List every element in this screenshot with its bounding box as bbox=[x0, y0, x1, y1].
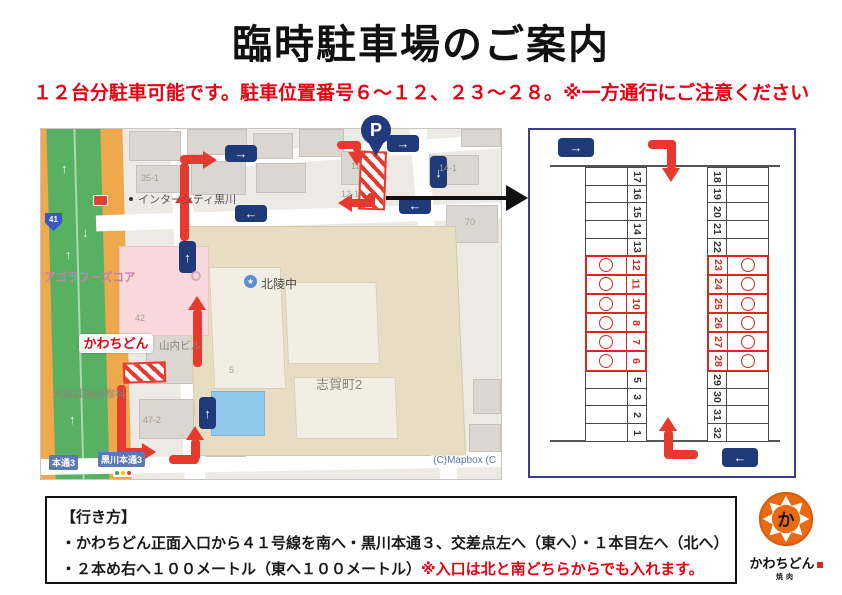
open-circle-mark bbox=[741, 297, 755, 311]
stall-number: 11 bbox=[630, 279, 642, 290]
stall-number: 21 bbox=[711, 224, 723, 236]
lane-arrow-down-icon: ↓ bbox=[82, 225, 89, 240]
stall-number-strip: 11 bbox=[626, 276, 645, 293]
parking-stall-2: 2 bbox=[585, 405, 647, 424]
roadsign-kurokawa-hondori3: 黒川本通3 bbox=[98, 452, 145, 467]
entry-arrow-segment bbox=[667, 140, 676, 170]
stall-number-strip: 15 bbox=[627, 203, 646, 220]
stall-number-strip: 3 bbox=[627, 389, 646, 406]
parking-stall-20: 20 bbox=[707, 202, 769, 221]
stall-number-strip: 12 bbox=[626, 257, 645, 274]
label-agora-foods: アゴラフーズコア bbox=[44, 269, 135, 285]
page-title: 臨時駐車場のご案内 bbox=[0, 12, 842, 70]
one-way-right-icon: → bbox=[387, 135, 419, 152]
stall-number: 18 bbox=[711, 171, 723, 183]
stall-number-strip: 5 bbox=[627, 371, 646, 388]
stall-number-strip: 10 bbox=[626, 295, 645, 312]
stall-number-strip: 21 bbox=[708, 221, 727, 238]
parking-stall-11: 11 bbox=[585, 274, 647, 295]
stall-number: 24 bbox=[712, 279, 724, 291]
label-intercity-kurokawa: インターシティ黒川 bbox=[138, 191, 236, 207]
parking-stall-15: 15 bbox=[585, 202, 647, 221]
parking-stall-10: 10 bbox=[585, 293, 647, 314]
open-circle-mark bbox=[741, 335, 755, 349]
stall-number: 31 bbox=[711, 409, 723, 421]
stall-number-strip: 23 bbox=[709, 257, 728, 274]
stall-number: 6 bbox=[630, 358, 642, 364]
entry-arrow-down-icon bbox=[662, 168, 680, 182]
logo-name: かわちどん bbox=[740, 553, 832, 572]
map-to-diagram-arrowhead bbox=[506, 185, 528, 211]
parking-stall-12: 12 bbox=[585, 255, 647, 276]
map-badge-icon bbox=[93, 195, 108, 206]
open-circle-mark bbox=[599, 335, 613, 349]
one-way-up-icon: ↑ bbox=[199, 397, 216, 429]
page-subtitle: １２台分駐車可能です。駐車位置番号６～１２、２３～２８。※一方通行にご注意くださ… bbox=[0, 78, 842, 105]
parking-stall-21: 21 bbox=[707, 220, 769, 239]
parking-stall-32: 32 bbox=[707, 423, 769, 442]
parking-stall-14: 14 bbox=[585, 220, 647, 239]
parking-stall-6: 6 bbox=[585, 350, 647, 371]
stall-number: 32 bbox=[711, 427, 723, 439]
stall-number: 5 bbox=[631, 377, 643, 383]
open-circle-mark bbox=[599, 297, 613, 311]
stall-number: 10 bbox=[630, 298, 642, 310]
open-circle-mark bbox=[599, 354, 613, 368]
route-arrow-segment bbox=[349, 199, 375, 207]
stall-number-strip: 30 bbox=[708, 389, 727, 406]
map-attribution: (C)Mapbox (C bbox=[431, 455, 498, 466]
stall-number: 14 bbox=[631, 224, 643, 236]
one-way-right-icon: → bbox=[225, 145, 257, 162]
parking-flyer: 臨時駐車場のご案内 １２台分駐車可能です。駐車位置番号６～１２、２３～２８。※一… bbox=[0, 0, 842, 595]
stall-number-strip: 16 bbox=[627, 186, 646, 203]
stall-number: 30 bbox=[711, 391, 723, 403]
building-number: 47-2 bbox=[143, 415, 161, 425]
parking-stall-1: 1 bbox=[585, 423, 647, 442]
shop-icon bbox=[191, 271, 201, 281]
map-building bbox=[473, 379, 501, 414]
map-building bbox=[191, 161, 246, 195]
stall-number-strip: 24 bbox=[709, 276, 728, 293]
stall-number: 17 bbox=[631, 171, 643, 183]
parking-stall-16: 16 bbox=[585, 185, 647, 204]
route-41-highway bbox=[46, 128, 110, 480]
stall-column-right: 181920212223242526272829303132 bbox=[707, 167, 769, 442]
brand-logo: か かわちどん 焼肉 bbox=[740, 490, 832, 582]
stall-number: 27 bbox=[712, 336, 724, 348]
route-arrow-right-icon bbox=[203, 151, 217, 169]
stall-number-strip: 2 bbox=[627, 406, 646, 423]
open-circle-mark bbox=[599, 277, 613, 291]
stall-number-strip: 17 bbox=[627, 168, 646, 185]
route-arrow-segment bbox=[191, 439, 200, 461]
one-way-left-icon: ← bbox=[722, 448, 758, 467]
stall-column-left: 17161514131211108765321 bbox=[585, 167, 647, 442]
parking-stall-17: 17 bbox=[585, 167, 647, 186]
building-number: 5 bbox=[229, 365, 234, 375]
open-circle-mark bbox=[599, 258, 613, 272]
open-circle-mark bbox=[741, 354, 755, 368]
stall-number: 22 bbox=[711, 241, 723, 253]
map-to-diagram-arrow bbox=[386, 196, 508, 200]
directions-line1: ・かわちどん正面入口から４１号線を南へ・黒川本通３、交差点左へ（東へ）・１本目左… bbox=[61, 531, 721, 557]
label-yamauchi-bldg: 山内ビル bbox=[159, 338, 201, 353]
map-building bbox=[129, 131, 181, 161]
stall-number-strip: 1 bbox=[627, 424, 646, 441]
parking-stall-24: 24 bbox=[707, 274, 769, 295]
stall-number-strip: 32 bbox=[708, 424, 727, 441]
parking-stall-19: 19 bbox=[707, 185, 769, 204]
stall-number-strip: 20 bbox=[708, 203, 727, 220]
stall-number-strip: 27 bbox=[709, 333, 728, 350]
stall-number: 12 bbox=[630, 259, 642, 271]
map-building bbox=[253, 133, 293, 159]
stall-number-strip: 8 bbox=[626, 314, 645, 331]
open-circle-mark bbox=[741, 277, 755, 291]
parking-stall-3: 3 bbox=[585, 388, 647, 407]
parking-stall-25: 25 bbox=[707, 293, 769, 314]
label-shigacho: 志賀町2 bbox=[316, 374, 362, 393]
map-building bbox=[469, 424, 501, 452]
parking-stall-28: 28 bbox=[707, 350, 769, 371]
traffic-signal-icon bbox=[113, 469, 133, 477]
lane-arrow-up-icon: ↑ bbox=[69, 412, 76, 427]
stall-number-strip: 26 bbox=[709, 314, 728, 331]
stall-number-strip: 19 bbox=[708, 186, 727, 203]
parking-stall-23: 23 bbox=[707, 255, 769, 276]
kawachidon-emblem-icon: か bbox=[757, 490, 815, 548]
parking-stall-30: 30 bbox=[707, 388, 769, 407]
route-map: ↑ ↓ ↑ ↓ ↑ bbox=[40, 128, 502, 480]
school-pool bbox=[211, 391, 265, 436]
one-way-right-icon: → bbox=[558, 138, 594, 157]
stall-number: 23 bbox=[712, 259, 724, 271]
stall-number-strip: 31 bbox=[708, 406, 727, 423]
stall-number-strip: 6 bbox=[626, 352, 645, 369]
emblem-character: か bbox=[777, 510, 795, 530]
label-omori-ent: 大森耳鼻咽喉科 bbox=[52, 386, 126, 401]
one-way-left-icon: ← bbox=[235, 205, 267, 222]
parking-stall-7: 7 bbox=[585, 331, 647, 352]
map-building bbox=[461, 129, 501, 147]
route-arrow-up-icon bbox=[188, 296, 206, 310]
stall-number: 7 bbox=[630, 339, 642, 345]
stall-number: 28 bbox=[712, 355, 724, 367]
stall-number: 25 bbox=[712, 298, 724, 310]
building-number: 14-1 bbox=[439, 163, 457, 173]
lane-arrow-up-icon: ↑ bbox=[61, 161, 68, 176]
parking-stall-29: 29 bbox=[707, 370, 769, 389]
directions-box: 【行き方】 ・かわちどん正面入口から４１号線を南へ・黒川本通３、交差点左へ（東へ… bbox=[45, 496, 737, 584]
lane-arrow-up-icon: ↑ bbox=[65, 247, 72, 262]
stall-number-strip: 18 bbox=[708, 168, 727, 185]
exit-arrow-up-icon bbox=[659, 417, 677, 431]
one-way-up-icon: ↑ bbox=[179, 241, 196, 273]
open-circle-mark bbox=[741, 316, 755, 330]
stall-number-strip: 29 bbox=[708, 371, 727, 388]
parking-stall-5: 5 bbox=[585, 370, 647, 389]
building-number: 12 bbox=[351, 161, 361, 171]
kawachidon-location-hatch bbox=[123, 361, 167, 383]
parking-stall-8: 8 bbox=[585, 312, 647, 333]
label-hokuryo-school: 北陵中 bbox=[261, 275, 297, 292]
stall-number: 20 bbox=[711, 206, 723, 218]
directions-heading: 【行き方】 bbox=[61, 505, 721, 531]
stall-number-strip: 22 bbox=[708, 239, 727, 256]
logo-seal-icon bbox=[817, 562, 823, 568]
stall-number-strip: 13 bbox=[627, 239, 646, 256]
label-kawachidon: かわちどん bbox=[79, 334, 153, 353]
parking-stall-26: 26 bbox=[707, 312, 769, 333]
stall-number-strip: 25 bbox=[709, 295, 728, 312]
directions-entrance-note: ※入口は北と南どちらからでも入れます。 bbox=[421, 561, 704, 578]
stall-number: 1 bbox=[631, 430, 643, 436]
building-number: 42 bbox=[135, 313, 145, 323]
map-building bbox=[256, 163, 306, 193]
building-number: 70 bbox=[465, 217, 475, 227]
logo-name-text: かわちどん bbox=[749, 556, 814, 571]
parking-pin-marker: P bbox=[361, 115, 391, 145]
parking-stall-27: 27 bbox=[707, 331, 769, 352]
building-number: 35-1 bbox=[141, 173, 159, 183]
parking-stall-18: 18 bbox=[707, 167, 769, 186]
directions-line2-text: ・２本め右へ１００メートル（東へ１００メートル） bbox=[61, 561, 421, 578]
school-star-icon: ★ bbox=[244, 275, 257, 288]
logo-subtext: 焼肉 bbox=[740, 572, 832, 582]
parking-diagram: 17161514131211108765321 1819202122232425… bbox=[528, 128, 796, 478]
stall-number-strip: 14 bbox=[627, 221, 646, 238]
directions-line2: ・２本め右へ１００メートル（東へ１００メートル）※入口は北と南どちらからでも入れ… bbox=[61, 557, 721, 583]
building-number: 12-1 bbox=[341, 189, 359, 199]
open-circle-mark bbox=[741, 258, 755, 272]
parking-stall-31: 31 bbox=[707, 405, 769, 424]
stall-number: 15 bbox=[631, 206, 643, 218]
stall-number: 2 bbox=[631, 412, 643, 418]
exit-arrow-segment bbox=[664, 430, 673, 459]
stall-number: 8 bbox=[630, 320, 642, 326]
poi-dot-icon bbox=[129, 197, 133, 201]
stall-number-strip: 28 bbox=[709, 352, 728, 369]
stall-number: 19 bbox=[711, 188, 723, 200]
stall-number: 29 bbox=[711, 374, 723, 386]
roadsign-hondori3: 本通3 bbox=[49, 455, 78, 470]
open-circle-mark bbox=[599, 316, 613, 330]
stall-number: 16 bbox=[631, 188, 643, 200]
stall-number: 13 bbox=[631, 241, 643, 253]
stall-number: 26 bbox=[712, 317, 724, 329]
stall-number-strip: 7 bbox=[626, 333, 645, 350]
stall-number: 3 bbox=[631, 394, 643, 400]
